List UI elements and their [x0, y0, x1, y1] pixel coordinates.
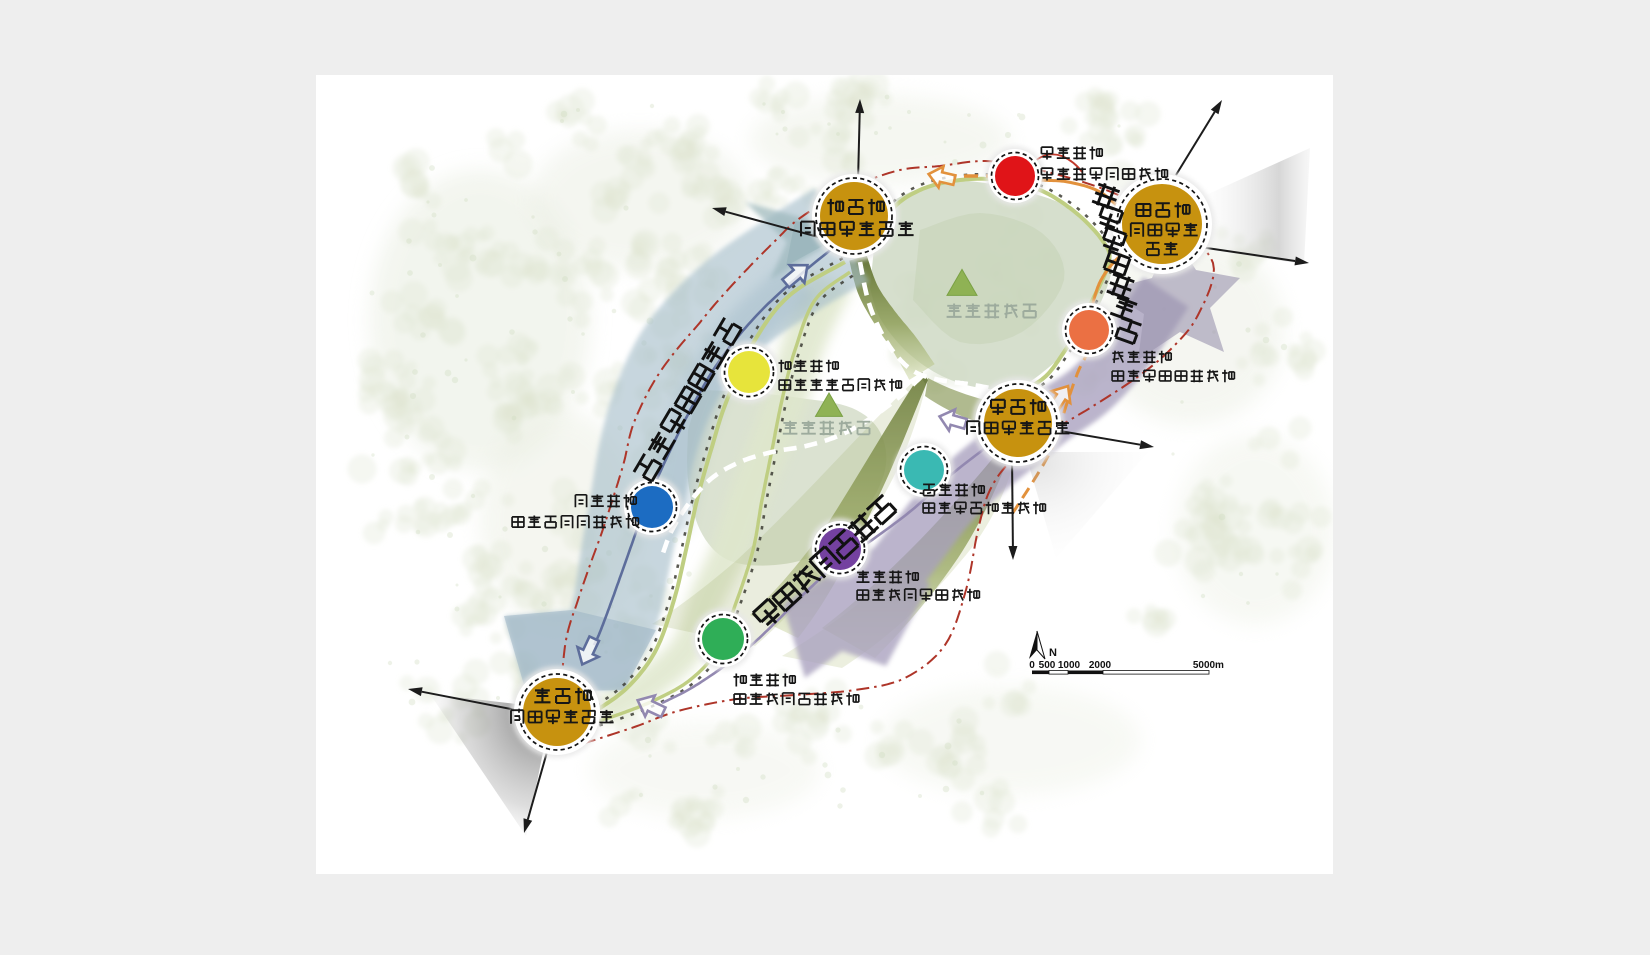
svg-text:5000: 5000	[1193, 660, 1216, 671]
svg-text:m: m	[1215, 660, 1224, 671]
svg-text:0: 0	[1029, 660, 1035, 671]
svg-text:1000: 1000	[1058, 660, 1081, 671]
svg-text:N: N	[1049, 647, 1057, 659]
svg-text:500: 500	[1039, 660, 1056, 671]
svg-text:2000: 2000	[1089, 660, 1112, 671]
